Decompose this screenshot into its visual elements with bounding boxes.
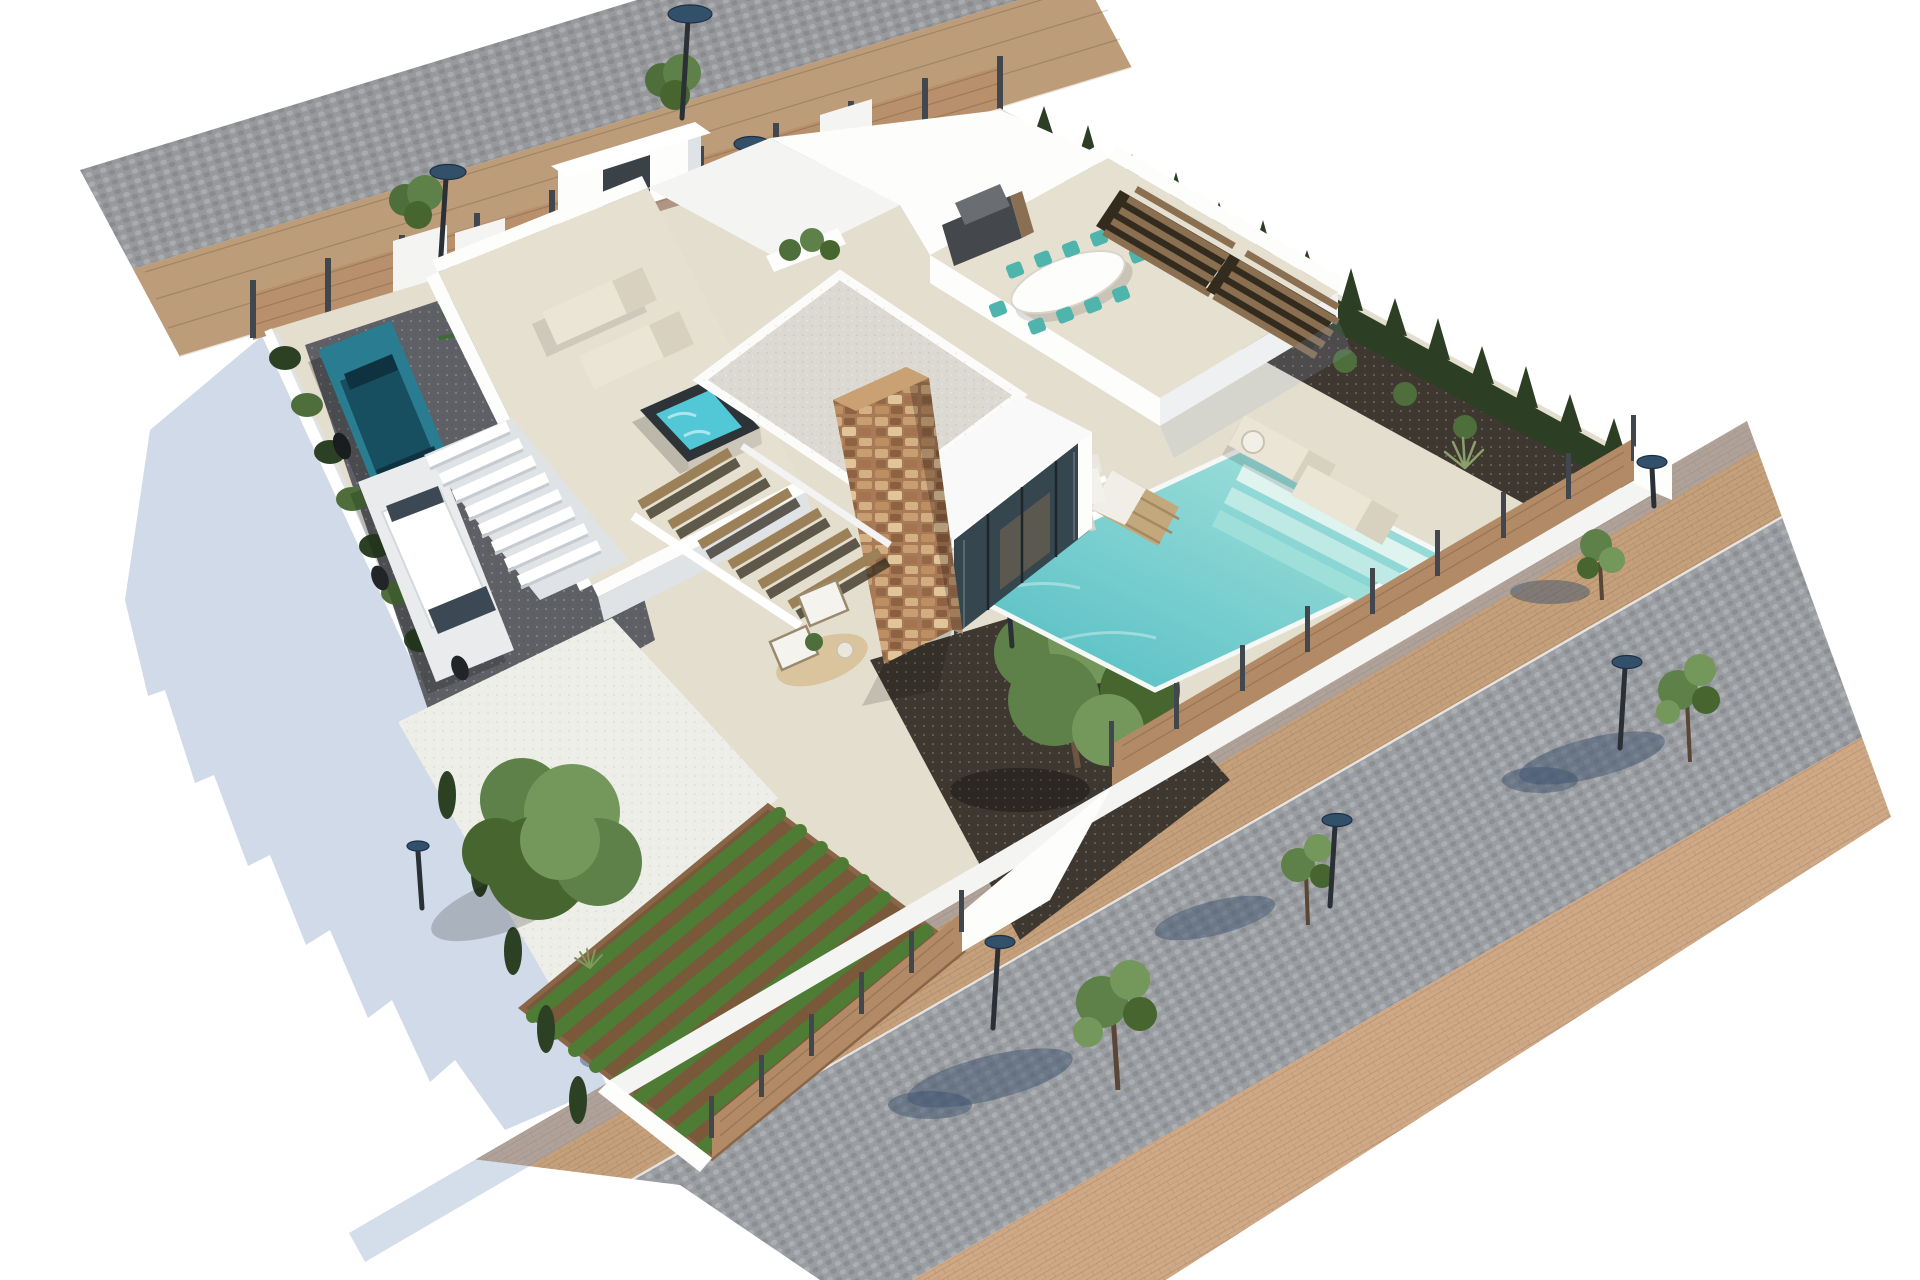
render-canvas (0, 0, 1920, 1280)
cypress-tree (438, 771, 456, 819)
cypress-tree (504, 927, 522, 975)
cypress-tree (569, 1076, 587, 1124)
side-table (837, 642, 853, 658)
potted-plant (805, 633, 823, 651)
cypress-tree (537, 1005, 555, 1053)
facade-pillar (1078, 432, 1092, 539)
fence-post (325, 258, 331, 316)
villa-render (0, 0, 1920, 1280)
fence-post (250, 280, 256, 338)
olive-shadow (950, 768, 1090, 812)
fence-post (997, 56, 1003, 114)
side-table (1242, 431, 1264, 453)
